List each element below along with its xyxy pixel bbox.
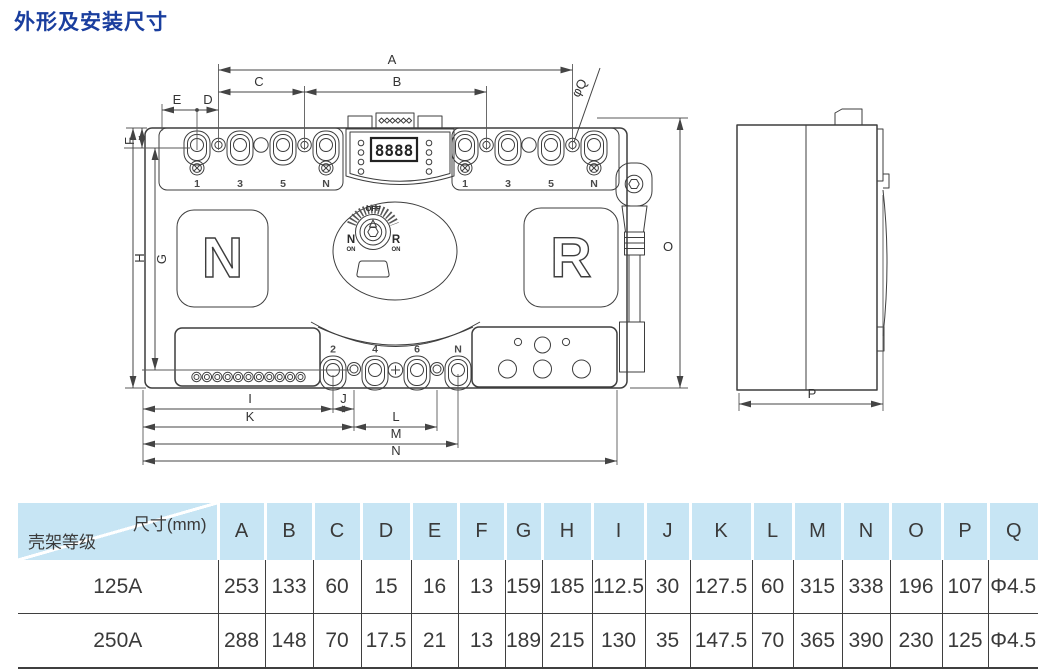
- value-cell: 130: [592, 614, 645, 669]
- value-cell: 60: [313, 560, 361, 614]
- column-header-e: E: [411, 503, 458, 560]
- value-cell: 288: [218, 614, 265, 669]
- front-view: 1 3 5 N 1 3: [145, 113, 652, 390]
- dim-label-i: I: [248, 391, 252, 406]
- knob-hex: [368, 228, 378, 237]
- value-cell: 125: [942, 614, 988, 669]
- digital-display-value: 8888: [375, 141, 414, 160]
- wiring-connector-icon: [379, 118, 412, 123]
- value-cell: 21: [411, 614, 458, 669]
- terminal-label: 4: [372, 344, 378, 356]
- value-cell: 133: [265, 560, 313, 614]
- value-cell: 17.5: [361, 614, 411, 669]
- terminal-label: 2: [330, 344, 336, 356]
- value-cell: 215: [542, 614, 592, 669]
- dim-label-h: H: [132, 253, 147, 262]
- dim-label-o: O: [663, 239, 673, 254]
- value-cell: Φ4.5: [988, 560, 1038, 614]
- side-view-top-tab: [835, 109, 862, 125]
- dim-label-f: F: [122, 137, 137, 145]
- dim-label-b: B: [393, 74, 402, 89]
- terminal-label: 6: [414, 344, 420, 356]
- dim-label-a: A: [388, 52, 397, 67]
- dim-label-n: N: [391, 443, 400, 458]
- switch-off-label: OFF: [366, 204, 381, 213]
- value-cell: 35: [645, 614, 690, 669]
- terminal-label: 3: [505, 178, 511, 190]
- table-header-row: 尺寸(mm) 壳架等级 A B C D E F G H I J K L M N …: [18, 503, 1038, 560]
- model-cell: 125A: [18, 560, 218, 614]
- column-header-f: F: [458, 503, 505, 560]
- dimension-drawing: 1 3 5 N 1 3: [0, 45, 1056, 495]
- column-header-i: I: [592, 503, 645, 560]
- column-header-c: C: [313, 503, 361, 560]
- value-cell: 60: [752, 560, 793, 614]
- value-cell: 16: [411, 560, 458, 614]
- column-header-h: H: [542, 503, 592, 560]
- terminal-label: 1: [194, 178, 200, 190]
- value-cell: 189: [505, 614, 542, 669]
- top-terminal-bank-left: 1 3 5 N: [159, 128, 343, 190]
- datasheet-page: 外形及安装尺寸: [0, 0, 1056, 669]
- terminal-label: 5: [280, 178, 286, 190]
- terminal-label: N: [322, 178, 330, 190]
- column-header-q: Q: [988, 503, 1038, 560]
- value-cell: 13: [458, 560, 505, 614]
- value-cell: 253: [218, 560, 265, 614]
- column-header-a: A: [218, 503, 265, 560]
- switch-r-label: R: [392, 234, 401, 246]
- column-header-k: K: [690, 503, 752, 560]
- value-cell: 315: [793, 560, 842, 614]
- bottom-right-panel: [472, 327, 617, 387]
- value-cell: 185: [542, 560, 592, 614]
- corner-label-frame-rating: 壳架等级: [28, 528, 96, 553]
- dimensions-table: 尺寸(mm) 壳架等级 A B C D E F G H I J K L M N …: [18, 503, 1038, 669]
- column-header-l: L: [752, 503, 793, 560]
- value-cell: 70: [752, 614, 793, 669]
- dim-label-m: M: [391, 426, 402, 441]
- value-cell: 30: [645, 560, 690, 614]
- value-cell: 13: [458, 614, 505, 669]
- value-cell: 147.5: [690, 614, 752, 669]
- terminal-label: N: [454, 344, 462, 356]
- side-view: P: [737, 109, 889, 411]
- dim-label-phi-q: φQ: [568, 76, 590, 99]
- column-header-n: N: [842, 503, 890, 560]
- table-row-250a: 250A 288 148 70 17.5 21 13 189 215 130 3…: [18, 614, 1038, 669]
- column-header-o: O: [890, 503, 942, 560]
- value-cell: 148: [265, 614, 313, 669]
- value-cell: 390: [842, 614, 890, 669]
- terminal-label: N: [590, 178, 598, 190]
- value-cell: 196: [890, 560, 942, 614]
- value-cell: 338: [842, 560, 890, 614]
- bottom-terminal-bank: 2 4 6 N: [320, 344, 471, 391]
- value-cell: 230: [890, 614, 942, 669]
- terminal-label: 3: [237, 178, 243, 190]
- value-cell: 159: [505, 560, 542, 614]
- value-cell: 15: [361, 560, 411, 614]
- column-header-b: B: [265, 503, 313, 560]
- terminal-label: 5: [548, 178, 554, 190]
- value-cell: 365: [793, 614, 842, 669]
- dim-label-d: D: [203, 92, 212, 107]
- model-cell: 250A: [18, 614, 218, 669]
- column-header-p: P: [942, 503, 988, 560]
- table-corner-cell: 尺寸(mm) 壳架等级: [18, 503, 218, 560]
- value-cell: Φ4.5: [988, 614, 1038, 669]
- normal-source-panel: N: [177, 210, 268, 307]
- column-header-j: J: [645, 503, 690, 560]
- column-header-m: M: [793, 503, 842, 560]
- dim-label-e: E: [173, 92, 182, 107]
- dim-label-l: L: [392, 409, 399, 424]
- r-source-letter: R: [550, 226, 591, 290]
- page-title: 外形及安装尺寸: [14, 6, 168, 36]
- dim-label-c: C: [254, 74, 263, 89]
- operating-handle: [616, 163, 652, 372]
- switch-pointer: [357, 261, 389, 277]
- value-cell: 70: [313, 614, 361, 669]
- top-terminal-bank-right: 1 3 5 N: [452, 128, 619, 190]
- dim-label-p: P: [808, 386, 817, 401]
- technical-drawing-svg: 1 3 5 N 1 3: [0, 45, 1056, 495]
- switch-n-label: N: [347, 234, 355, 246]
- switch-r-on-label: ON: [392, 247, 401, 253]
- dim-label-k: K: [246, 409, 255, 424]
- controller-panel: 8888: [346, 113, 454, 185]
- n-source-letter: N: [202, 226, 243, 290]
- dim-label-j: J: [340, 391, 347, 406]
- table-row-125a: 125A 253 133 60 15 16 13 159 185 112.5 3…: [18, 560, 1038, 614]
- column-header-d: D: [361, 503, 411, 560]
- rotary-switch: OFF N ON R ON: [333, 202, 457, 300]
- dim-label-g: G: [154, 254, 169, 264]
- switch-n-on-label: ON: [347, 247, 356, 253]
- value-cell: 112.5: [592, 560, 645, 614]
- terminal-label: 1: [462, 178, 468, 190]
- value-cell: 107: [942, 560, 988, 614]
- corner-label-size-mm: 尺寸(mm): [133, 510, 207, 535]
- control-terminal-strip: [175, 328, 320, 386]
- reserve-source-panel: R: [524, 208, 618, 307]
- value-cell: 127.5: [690, 560, 752, 614]
- column-header-g: G: [505, 503, 542, 560]
